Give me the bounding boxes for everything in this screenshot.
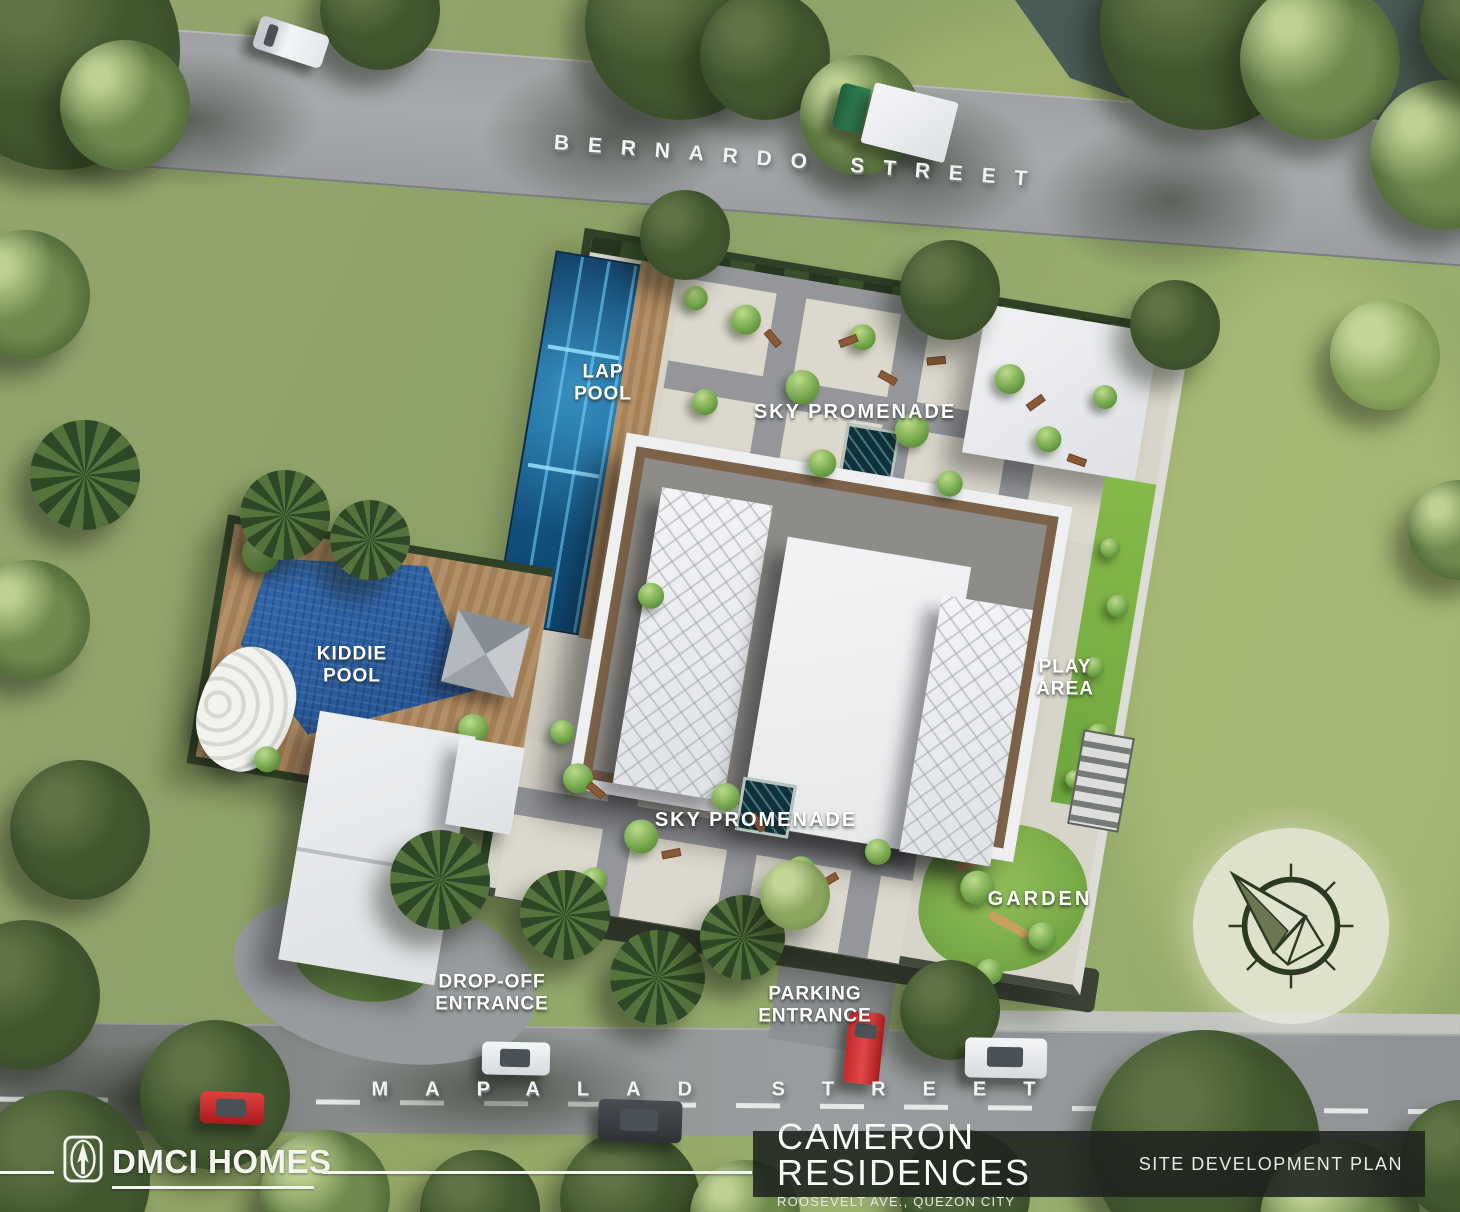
compass-badge	[1193, 828, 1389, 1024]
roof-joint	[296, 847, 452, 877]
amenity-roof	[962, 304, 1159, 481]
play-area-label: PLAY AREA	[1036, 657, 1094, 702]
title-block: CAMERON RESIDENCES ROOSEVELT AVE., QUEZO…	[777, 1119, 1121, 1209]
tree	[0, 230, 90, 360]
tree	[30, 420, 140, 530]
footer-rule	[0, 1171, 54, 1174]
tree	[10, 760, 150, 900]
residential-building-roof	[567, 433, 1072, 863]
lap-pool-lane-mark	[548, 344, 620, 360]
project-name: CAMERON RESIDENCES	[777, 1119, 1121, 1191]
plan-type: SITE DEVELOPMENT PLAN	[1139, 1154, 1403, 1175]
tree-shadow	[0, 1040, 260, 1160]
drop-off-entrance-label: DROP-OFF ENTRANCE	[435, 972, 549, 1017]
project-address: ROOSEVELT AVE., QUEZON CITY	[777, 1194, 1121, 1209]
tree-shadow	[60, 50, 320, 190]
lap-pool-label: LAP POOL	[574, 362, 632, 407]
sky-promenade-lower-label: SKY PROMENADE	[655, 809, 857, 833]
sky-promenade-upper-label: SKY PROMENADE	[754, 401, 956, 425]
brand-name: DMCI HOMES	[112, 1143, 332, 1181]
site-development-plan: LAP POOL KIDDIE POOL SKY PROMENADE SKY P…	[0, 0, 1460, 1212]
shrub	[549, 718, 577, 746]
footer-rule	[322, 1171, 752, 1174]
parking-entrance-label: PARKING ENTRANCE	[758, 984, 872, 1029]
kiddie-pool-label: KIDDIE POOL	[317, 644, 387, 689]
tree-shadow	[1040, 120, 1300, 280]
garden-label: GARDEN	[988, 888, 1093, 912]
brand-underline	[112, 1186, 314, 1189]
garden-bench	[987, 910, 1030, 939]
tree	[0, 560, 90, 680]
title-panel: CAMERON RESIDENCES ROOSEVELT AVE., QUEZO…	[753, 1131, 1425, 1197]
lap-pool-lane-mark	[528, 463, 600, 479]
dmci-homes-logo-icon	[62, 1134, 104, 1184]
mapalad-street-label: MAPALAD STREET	[372, 1079, 1073, 1102]
amenity-deck	[474, 228, 1192, 995]
compass-rose-icon	[1211, 846, 1371, 1006]
